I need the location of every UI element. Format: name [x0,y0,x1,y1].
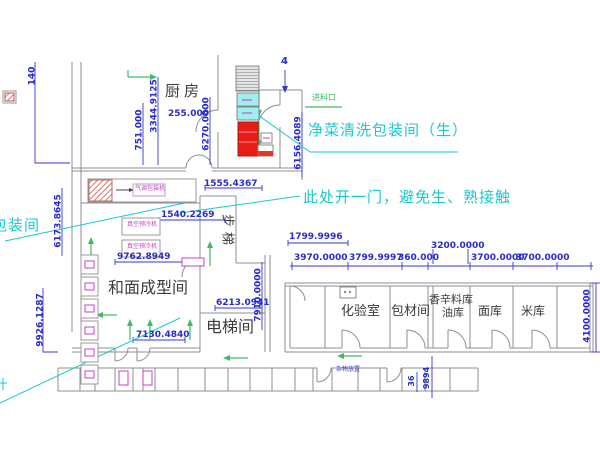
room-label-stairs: 步梯 [221,214,234,250]
dim-6270: 6270.0000 [203,97,212,151]
dim-360: 360.000 [398,254,439,263]
dim-3970: 3970.0000 [294,254,348,263]
dim-1555: 1555.4367 [204,180,258,189]
dim-4100: 4100.0000 [584,289,593,343]
door-arcs [115,105,550,382]
annotation-clean-wash-room: 净菜清洗包装间（生） [308,123,468,138]
dim-1799: 1799.9996 [289,233,343,242]
room-label-lab: 化验室 [341,305,380,318]
dim-3344: 3344.9125 [151,79,160,133]
dim-140: 140 [29,67,38,86]
annotation-door-note: 此处开一门，避免生、熟接触 [303,190,511,205]
dim-6173: 6173.8645 [55,194,64,248]
room-label-spice-store-1: 香辛料库 [429,294,473,305]
cad-floor-plan: 厨房 步梯 和面成型间 电梯间 化验室 包材间 香辛料库 油库 面库 米库 净菜… [0,0,600,450]
dim-9926: 9926.1287 [37,293,46,347]
room-label-kitchen: 厨房 [165,84,203,99]
equipment-label-vacuum-cooler-2: 真空预冷机 [127,244,157,250]
annotation-misc-label: 杂物放置 [336,367,360,373]
equipment-label-vacuum-cooler-1: 真空预冷机 [127,222,157,228]
room-label-flour-store: 面库 [478,305,502,317]
dim-9762: 9762.8949 [117,253,171,262]
dim-36: 36 [408,375,416,386]
dim-3799: 3799.9997 [349,254,403,263]
room-label-elevator: 电梯间 [206,319,254,335]
room-label-spice-store-2: 油库 [442,307,464,318]
dim-3700-b: 3700.0000 [516,254,570,263]
dim-7130: 7130.4840 [136,331,190,340]
grid-axis-label: 4 [281,57,288,67]
equipment-label-packer: 气调包装机 [135,186,165,192]
dim-7910: 7910.0000 [255,268,264,322]
room-label-packing-material: 包材间 [391,305,430,318]
dim-9894: 9894 [423,367,431,389]
annotation-packing-room-cut: 包装间 [0,218,40,233]
annotation-feed-inlet: 进料口 [312,94,336,102]
dim-6156: 6156.4089 [295,116,304,170]
room-label-rice-store: 米库 [521,305,545,317]
floor-plan-linework [0,0,600,450]
dim-1540: 1540.2269 [161,211,215,220]
dim-3200: 3200.0000 [431,242,485,251]
dim-751: 751.000 [136,110,145,151]
room-label-dough-forming: 和面成型间 [108,280,188,296]
